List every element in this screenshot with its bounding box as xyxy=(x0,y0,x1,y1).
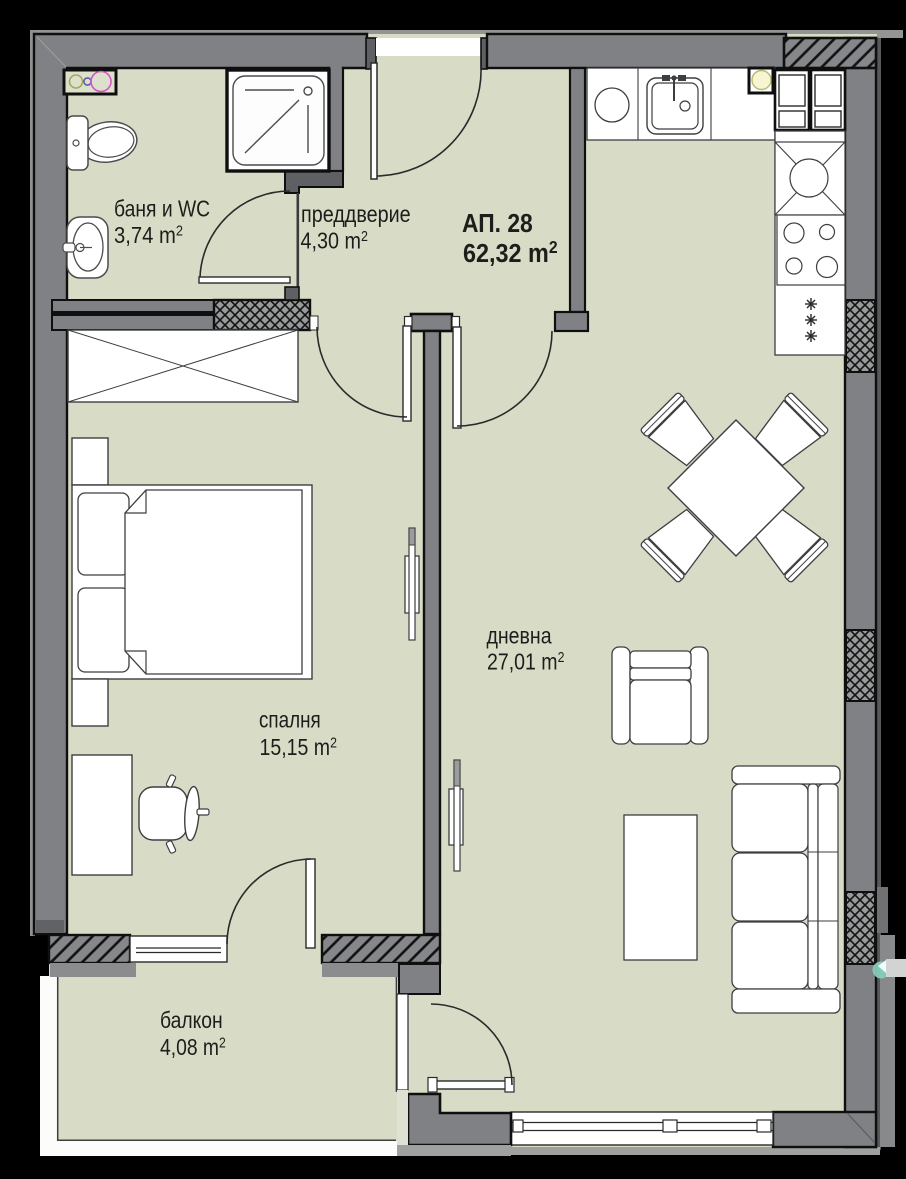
svg-text:баня и WC: баня и WC xyxy=(114,197,210,222)
svg-text:спалня: спалня xyxy=(259,708,321,733)
svg-text:62,32 m2: 62,32 m2 xyxy=(463,237,558,268)
svg-text:преддверие: преддверие xyxy=(301,202,411,228)
svg-text:АП. 28: АП. 28 xyxy=(462,210,533,239)
svg-text:15,15 m2: 15,15 m2 xyxy=(260,735,337,761)
svg-text:4,30 m2: 4,30 m2 xyxy=(301,228,368,254)
svg-text:3,74 m2: 3,74 m2 xyxy=(114,222,183,249)
svg-text:27,01 m2: 27,01 m2 xyxy=(487,649,564,675)
svg-text:4,08 m2: 4,08 m2 xyxy=(160,1035,226,1061)
svg-text:балкон: балкон xyxy=(160,1008,223,1033)
svg-text:дневна: дневна xyxy=(487,623,552,649)
